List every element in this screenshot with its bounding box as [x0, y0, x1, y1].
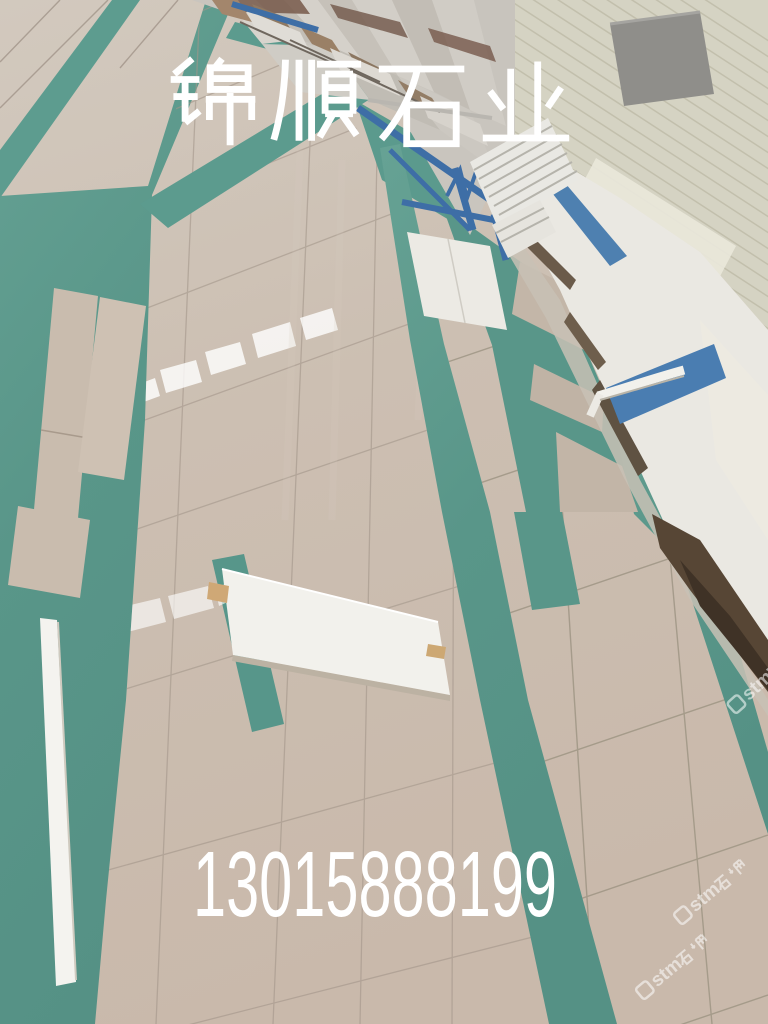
- svg-text:13015888199: 13015888199: [193, 832, 557, 936]
